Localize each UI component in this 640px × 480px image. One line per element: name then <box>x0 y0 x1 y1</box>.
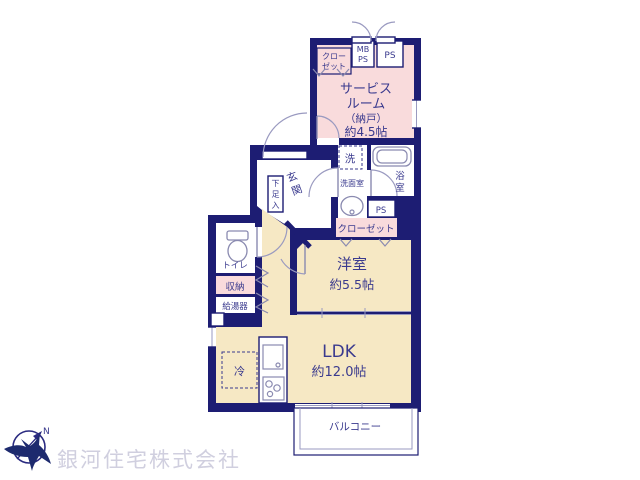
sink-icon <box>341 197 363 216</box>
bird-logo-icon <box>4 432 51 471</box>
bath-label-2: 室 <box>395 182 405 194</box>
ldk-size-label: 約12.0帖 <box>312 365 367 380</box>
service-room-label-1: サービス <box>340 82 392 97</box>
ldk-name-label: LDK <box>322 342 357 362</box>
closet-top-label-2: ゼット <box>322 61 346 71</box>
toilet-doorway <box>255 227 262 257</box>
ps-lower-label: PS <box>376 206 387 216</box>
service-room-label-3: （納戸） <box>345 112 387 125</box>
floorplan-svg: クロー ゼット MB PS PS サービス ルーム （納戸） 約4.5帖 洗 洗… <box>0 0 640 480</box>
shoe-label-3: 入 <box>272 201 280 210</box>
mb-label-1: MB <box>357 45 369 54</box>
ldk-floor <box>216 315 411 403</box>
company-name-watermark: 銀河住宅株式会社 <box>57 448 241 472</box>
fridge-label: 冷 <box>234 365 245 378</box>
meter-box-outside <box>211 313 224 326</box>
company-logo: N 銀河住宅株式会社 <box>4 427 241 472</box>
closet-top-label-1: クロー <box>322 52 346 61</box>
bedroom-size-label: 約5.5帖 <box>330 277 375 292</box>
service-doorway <box>317 138 339 145</box>
bedroom-floor <box>297 240 411 311</box>
toilet-tank-icon <box>227 231 248 240</box>
entrance-door-leaf <box>262 151 307 159</box>
toilet-bowl-icon <box>228 241 247 262</box>
bedroom-name-label: 洋室 <box>337 255 367 273</box>
meter-door-leaf <box>352 37 371 43</box>
meter-door-leaf <box>376 37 395 43</box>
shoe-label-2: 足 <box>272 190 280 199</box>
bedroom-closet-label: クローゼット <box>337 223 394 235</box>
toilet-label: トイレ <box>222 261 248 271</box>
ps-top-label: PS <box>384 51 395 61</box>
shoe-label-1: 下 <box>272 179 280 188</box>
mb-label-2: PS <box>358 55 368 64</box>
service-room-label-2: ルーム <box>347 97 386 112</box>
heater-label: 給湯器 <box>222 301 248 312</box>
washroom-doorway <box>331 168 338 197</box>
floorplan-image: クロー ゼット MB PS PS サービス ルーム （納戸） 約4.5帖 洗 洗… <box>0 0 640 480</box>
service-room-label-4: 約4.5帖 <box>344 124 387 139</box>
washer-label: 洗 <box>345 153 356 165</box>
storage-label: 収納 <box>225 281 244 293</box>
balcony-label: バルコニー <box>329 421 381 433</box>
bath-label-1: 浴 <box>395 171 405 182</box>
compass-north-label: N <box>43 427 50 437</box>
washroom-label: 洗面室 <box>340 178 364 188</box>
